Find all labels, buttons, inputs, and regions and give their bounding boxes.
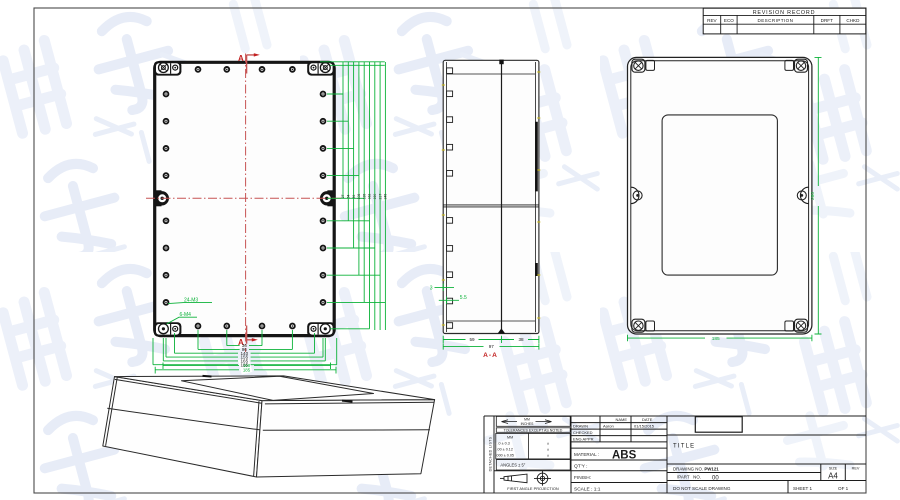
svg-text:ENG APPR: ENG APPR [573, 437, 594, 442]
svg-text:Aaron: Aaron [603, 424, 614, 429]
svg-text:NAME: NAME [616, 417, 628, 422]
svg-text:97: 97 [489, 344, 495, 349]
svg-text:185: 185 [712, 336, 720, 342]
svg-text:81: 81 [352, 195, 356, 199]
svg-text:54: 54 [347, 195, 351, 199]
svg-text:280: 280 [810, 192, 816, 200]
svg-text:CHECKED: CHECKED [573, 430, 593, 435]
svg-text:DRAWING NO. PW121: DRAWING NO. PW121 [673, 467, 719, 472]
svg-text:A-A: A-A [483, 352, 498, 359]
svg-text:DRAWN: DRAWN [573, 424, 588, 429]
svg-text:DESCRIPTION: DESCRIPTION [758, 18, 794, 23]
svg-text:245: 245 [384, 194, 388, 200]
svg-text:A: A [238, 54, 244, 63]
svg-text:REV: REV [852, 466, 860, 470]
svg-text:MM: MM [524, 417, 530, 421]
svg-text:INCHES: INCHES [521, 422, 535, 426]
svg-text:DETACHED LISTS: DETACHED LISTS [489, 436, 493, 471]
svg-text:.00 ± 0.12: .00 ± 0.12 [497, 447, 513, 451]
svg-text:FIRST ANGLE PROJECTION: FIRST ANGLE PROJECTION [507, 486, 559, 491]
svg-text:38: 38 [518, 337, 524, 342]
svg-text:5.5: 5.5 [460, 295, 467, 301]
svg-text:TITLE: TITLE [673, 444, 695, 450]
svg-text:DATE: DATE [642, 417, 653, 422]
svg-text:SIZE: SIZE [829, 466, 838, 470]
svg-text:ANGLES ± 5°: ANGLES ± 5° [500, 463, 525, 468]
svg-text:TOLERANCES EXCEPT AS NOTED: TOLERANCES EXCEPT AS NOTED [504, 429, 563, 433]
svg-text:3: 3 [430, 286, 433, 292]
svg-text:27: 27 [341, 195, 345, 199]
svg-text:MATERIAL :: MATERIAL : [574, 452, 599, 457]
svg-text:135: 135 [362, 194, 366, 200]
svg-text:FINISH:: FINISH: [574, 475, 591, 481]
svg-text:ABS: ABS [612, 450, 637, 462]
svg-text:DRFT: DRFT [821, 18, 833, 23]
svg-text:185: 185 [243, 367, 251, 372]
svg-text:DO NOT SCALE DRAWING: DO NOT SCALE DRAWING [673, 486, 731, 491]
svg-text:±: ± [547, 441, 549, 445]
svg-text:.0 ± 0.3: .0 ± 0.3 [498, 441, 510, 445]
svg-text:ECO: ECO [724, 18, 734, 23]
svg-text:162: 162 [368, 194, 372, 200]
svg-text:190: 190 [373, 194, 377, 200]
svg-text:REV: REV [707, 18, 717, 23]
svg-text:.000 ± 0.05: .000 ± 0.05 [496, 453, 514, 457]
svg-text:±: ± [547, 453, 549, 457]
svg-text:CHKD: CHKD [846, 18, 860, 23]
svg-text:59: 59 [469, 337, 475, 342]
svg-text:SCALE : 1:1: SCALE : 1:1 [574, 486, 601, 492]
svg-text:REVISION RECORD: REVISION RECORD [753, 10, 816, 16]
svg-text:MM: MM [507, 436, 513, 440]
svg-text:217: 217 [378, 194, 382, 200]
svg-text:QT’Y :: QT’Y : [574, 464, 588, 470]
svg-text:OF 1: OF 1 [838, 486, 849, 491]
svg-text:/PART NO.: /PART NO. [677, 474, 701, 479]
svg-text:00: 00 [712, 475, 719, 481]
svg-text:108: 108 [357, 194, 361, 200]
svg-text:A4: A4 [828, 472, 838, 481]
svg-text:01/15/2015: 01/15/2015 [634, 424, 655, 429]
svg-text:SHEET 1: SHEET 1 [793, 486, 813, 491]
svg-text:±: ± [547, 447, 549, 451]
